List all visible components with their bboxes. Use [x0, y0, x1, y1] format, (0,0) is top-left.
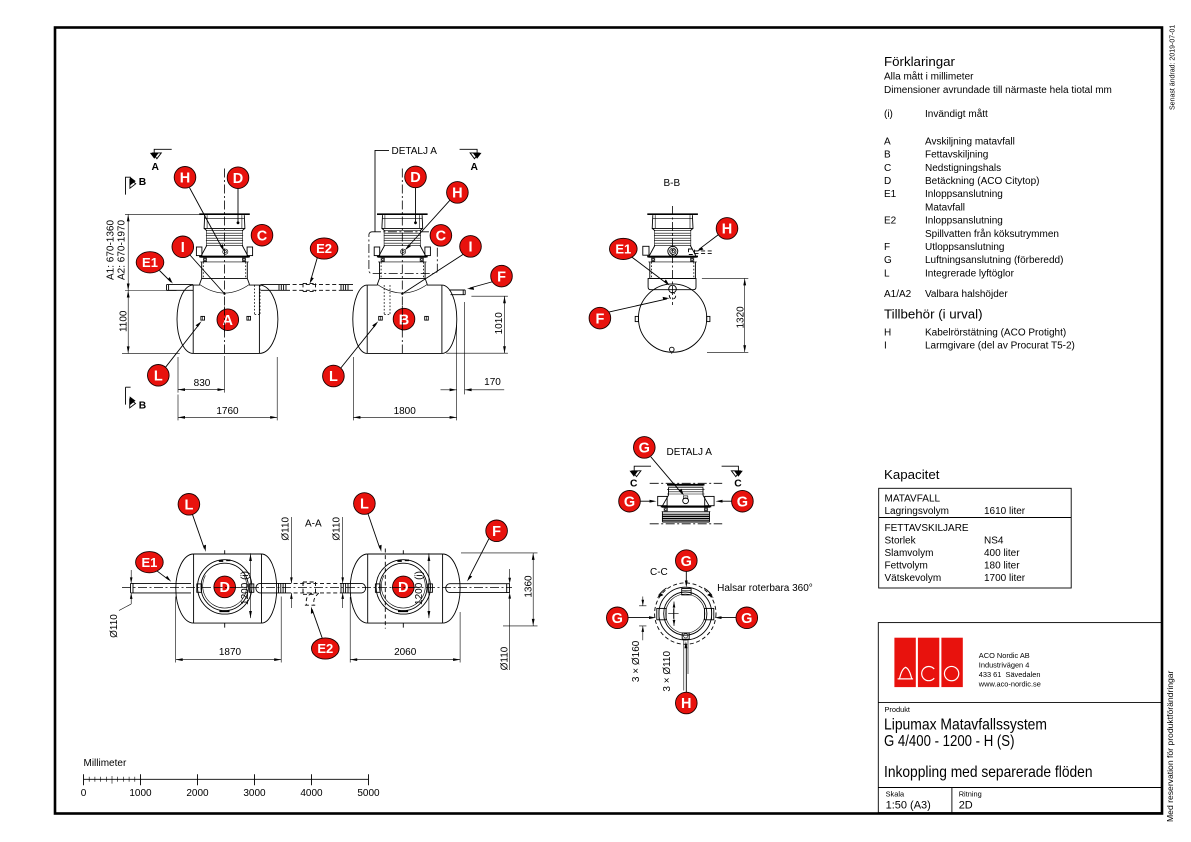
svg-text:E1: E1 — [615, 242, 631, 257]
svg-text:A2: 670-1970: A2: 670-1970 — [116, 220, 127, 280]
svg-text:G: G — [681, 554, 692, 570]
svg-text:Ø110: Ø110 — [500, 646, 511, 670]
svg-text:Lipumax Matavfallssystem: Lipumax Matavfallssystem — [884, 716, 1047, 733]
svg-text:Inloppsanslutning: Inloppsanslutning — [925, 189, 1003, 200]
svg-text:C: C — [257, 228, 268, 244]
svg-text:Invändigt mått: Invändigt mått — [925, 108, 988, 120]
svg-text:Fettavskiljning: Fettavskiljning — [925, 150, 988, 161]
svg-text:Dimensioner avrundade till när: Dimensioner avrundade till närmaste hela… — [884, 85, 1112, 96]
svg-text:H: H — [180, 171, 190, 187]
svg-text:E1: E1 — [884, 189, 897, 200]
svg-text:1320: 1320 — [735, 306, 746, 329]
svg-text:Produkt: Produkt — [885, 705, 910, 714]
svg-text:5000: 5000 — [357, 788, 380, 799]
svg-text:A: A — [884, 136, 891, 147]
svg-text:F: F — [497, 269, 506, 285]
svg-text:Tillbehör (i urval): Tillbehör (i urval) — [884, 307, 983, 322]
svg-text:H: H — [722, 222, 732, 238]
svg-text:H: H — [452, 186, 462, 202]
svg-text:1000: 1000 — [129, 788, 152, 799]
svg-text:E2: E2 — [316, 241, 332, 256]
svg-text:Ø110: Ø110 — [109, 614, 120, 638]
svg-text:180 liter: 180 liter — [984, 561, 1020, 572]
svg-text:E1: E1 — [142, 255, 158, 270]
svg-text:ACO Nordic AB: ACO Nordic AB — [979, 651, 1030, 660]
svg-text:A-A: A-A — [305, 518, 322, 529]
svg-text:D: D — [219, 580, 229, 596]
svg-text:Integrerade lyftöglor: Integrerade lyftöglor — [925, 268, 1015, 279]
svg-text:Avskiljning matavfall: Avskiljning matavfall — [925, 136, 1015, 147]
svg-text:F: F — [595, 311, 604, 327]
svg-text:830: 830 — [194, 378, 211, 389]
svg-text:1800: 1800 — [394, 406, 417, 417]
svg-text:Ø110: Ø110 — [332, 517, 343, 541]
svg-text:1100: 1100 — [119, 310, 130, 332]
svg-text:G: G — [884, 255, 892, 266]
svg-text:G: G — [737, 494, 748, 510]
svg-text:G: G — [612, 611, 623, 627]
svg-text:I: I — [181, 240, 185, 256]
svg-text:I: I — [884, 341, 887, 352]
svg-text:C: C — [630, 478, 638, 489]
svg-text:L: L — [184, 498, 193, 514]
svg-text:Luftningsanslutning (förberedd: Luftningsanslutning (förberedd) — [925, 255, 1063, 266]
svg-text:3 × Ø110: 3 × Ø110 — [662, 651, 673, 692]
svg-text:D: D — [884, 176, 891, 187]
svg-text:3 × Ø160: 3 × Ø160 — [631, 640, 642, 682]
svg-text:1610 liter: 1610 liter — [984, 506, 1026, 517]
svg-text:Matavfall: Matavfall — [925, 202, 965, 213]
svg-text:B: B — [139, 401, 146, 412]
svg-text:F: F — [884, 242, 890, 253]
svg-text:G: G — [741, 611, 752, 627]
svg-text:Betäckning (ACO Citytop): Betäckning (ACO Citytop) — [925, 176, 1040, 187]
svg-text:Alla mått i millimeter: Alla mått i millimeter — [884, 71, 974, 83]
svg-text:2D: 2D — [959, 800, 973, 812]
svg-text:1200 (i): 1200 (i) — [240, 571, 251, 605]
svg-text:B: B — [399, 312, 409, 328]
svg-text:400 liter: 400 liter — [984, 548, 1020, 559]
svg-text:Lagringsvolym: Lagringsvolym — [885, 506, 949, 517]
svg-text:1:50 (A3): 1:50 (A3) — [886, 800, 931, 812]
svg-text:NS4: NS4 — [984, 536, 1004, 547]
svg-text:C: C — [436, 229, 447, 245]
svg-text:A1/A2: A1/A2 — [884, 289, 912, 300]
svg-text:Spillvatten från köksutrymmen: Spillvatten från köksutrymmen — [925, 228, 1059, 240]
svg-text:MATAVFALL: MATAVFALL — [885, 494, 941, 505]
svg-text:A1: 670-1360: A1: 670-1360 — [106, 220, 117, 280]
svg-text:Storlek: Storlek — [885, 536, 917, 547]
svg-text:2060: 2060 — [394, 647, 417, 658]
svg-text:Industrivägen 4: Industrivägen 4 — [979, 660, 1030, 669]
svg-text:B: B — [139, 177, 146, 188]
svg-text:L: L — [329, 369, 338, 385]
svg-text:E1: E1 — [141, 555, 157, 570]
svg-text:D: D — [398, 580, 408, 596]
svg-text:Slamvolym: Slamvolym — [885, 548, 934, 559]
svg-text:H: H — [681, 696, 691, 712]
svg-text:C: C — [734, 478, 742, 489]
svg-text:Nedstigningshals: Nedstigningshals — [925, 163, 1001, 174]
svg-text:2000: 2000 — [186, 788, 209, 799]
svg-text:Ritning: Ritning — [959, 790, 982, 799]
svg-text:C: C — [884, 163, 891, 174]
svg-text:Inkoppling med separerade flöd: Inkoppling med separerade flöden — [884, 764, 1093, 781]
svg-text:B: B — [884, 150, 891, 161]
svg-text:Kabelrörstätning (ACO Protight: Kabelrörstätning (ACO Protight) — [925, 328, 1066, 339]
svg-text:Med reservation för produktför: Med reservation för produktförändringar — [1165, 670, 1175, 822]
svg-text:www.aco-nordic.se: www.aco-nordic.se — [978, 679, 1041, 688]
svg-text:B-B: B-B — [664, 178, 681, 189]
svg-text:Skala: Skala — [886, 790, 905, 799]
svg-text:Kapacitet: Kapacitet — [884, 467, 940, 482]
svg-text:0: 0 — [81, 788, 87, 799]
svg-text:I: I — [468, 240, 472, 256]
svg-text:Vätskevolym: Vätskevolym — [885, 573, 942, 584]
svg-text:D: D — [233, 171, 243, 187]
svg-text:1870: 1870 — [219, 647, 242, 658]
svg-text:1200 (i): 1200 (i) — [414, 571, 425, 605]
svg-text:Inloppsanslutning: Inloppsanslutning — [925, 216, 1003, 227]
svg-text:L: L — [360, 497, 369, 513]
svg-text:Millimeter: Millimeter — [84, 758, 127, 769]
svg-text:D: D — [410, 170, 420, 186]
svg-text:A: A — [471, 162, 479, 173]
svg-text:Halsar roterbara 360°: Halsar roterbara 360° — [717, 583, 813, 594]
svg-text:Ø110: Ø110 — [280, 517, 291, 541]
svg-text:Valbara halshöjder: Valbara halshöjder — [925, 289, 1008, 300]
svg-text:DETALJ A: DETALJ A — [667, 447, 713, 458]
svg-text:H: H — [884, 328, 891, 339]
svg-text:L: L — [154, 369, 163, 385]
svg-text:Senast ändrad: 2019-07-01: Senast ändrad: 2019-07-01 — [1170, 25, 1177, 110]
svg-text:Utloppsanslutning: Utloppsanslutning — [925, 242, 1005, 253]
svg-text:1700 liter: 1700 liter — [984, 573, 1026, 584]
svg-text:L: L — [884, 268, 890, 279]
svg-text:E2: E2 — [317, 641, 333, 656]
svg-text:F: F — [492, 524, 501, 540]
svg-text:G 4/400 - 1200 - H (S): G 4/400 - 1200 - H (S) — [884, 733, 1015, 750]
svg-text:Fettvolym: Fettvolym — [885, 561, 928, 572]
svg-text:Förklaringar: Förklaringar — [884, 54, 956, 69]
svg-text:A: A — [152, 162, 160, 173]
svg-text:1760: 1760 — [216, 406, 239, 417]
svg-text:433 61 Sävedalen: 433 61 Sävedalen — [979, 670, 1041, 679]
svg-text:E2: E2 — [884, 216, 897, 227]
svg-text:DETALJ A: DETALJ A — [392, 146, 438, 157]
svg-text:G: G — [639, 441, 650, 457]
svg-text:3000: 3000 — [243, 788, 266, 799]
svg-text:170: 170 — [484, 377, 501, 388]
svg-text:G: G — [624, 494, 635, 510]
svg-text:Larmgivare (del av Procurat T5: Larmgivare (del av Procurat T5-2) — [925, 341, 1075, 352]
svg-text:1360: 1360 — [523, 575, 534, 598]
svg-text:FETTAVSKILJARE: FETTAVSKILJARE — [885, 523, 969, 534]
svg-text:C-C: C-C — [650, 567, 668, 578]
svg-text:4000: 4000 — [300, 788, 323, 799]
svg-text:1010: 1010 — [494, 312, 505, 335]
svg-text:(i): (i) — [884, 109, 893, 120]
